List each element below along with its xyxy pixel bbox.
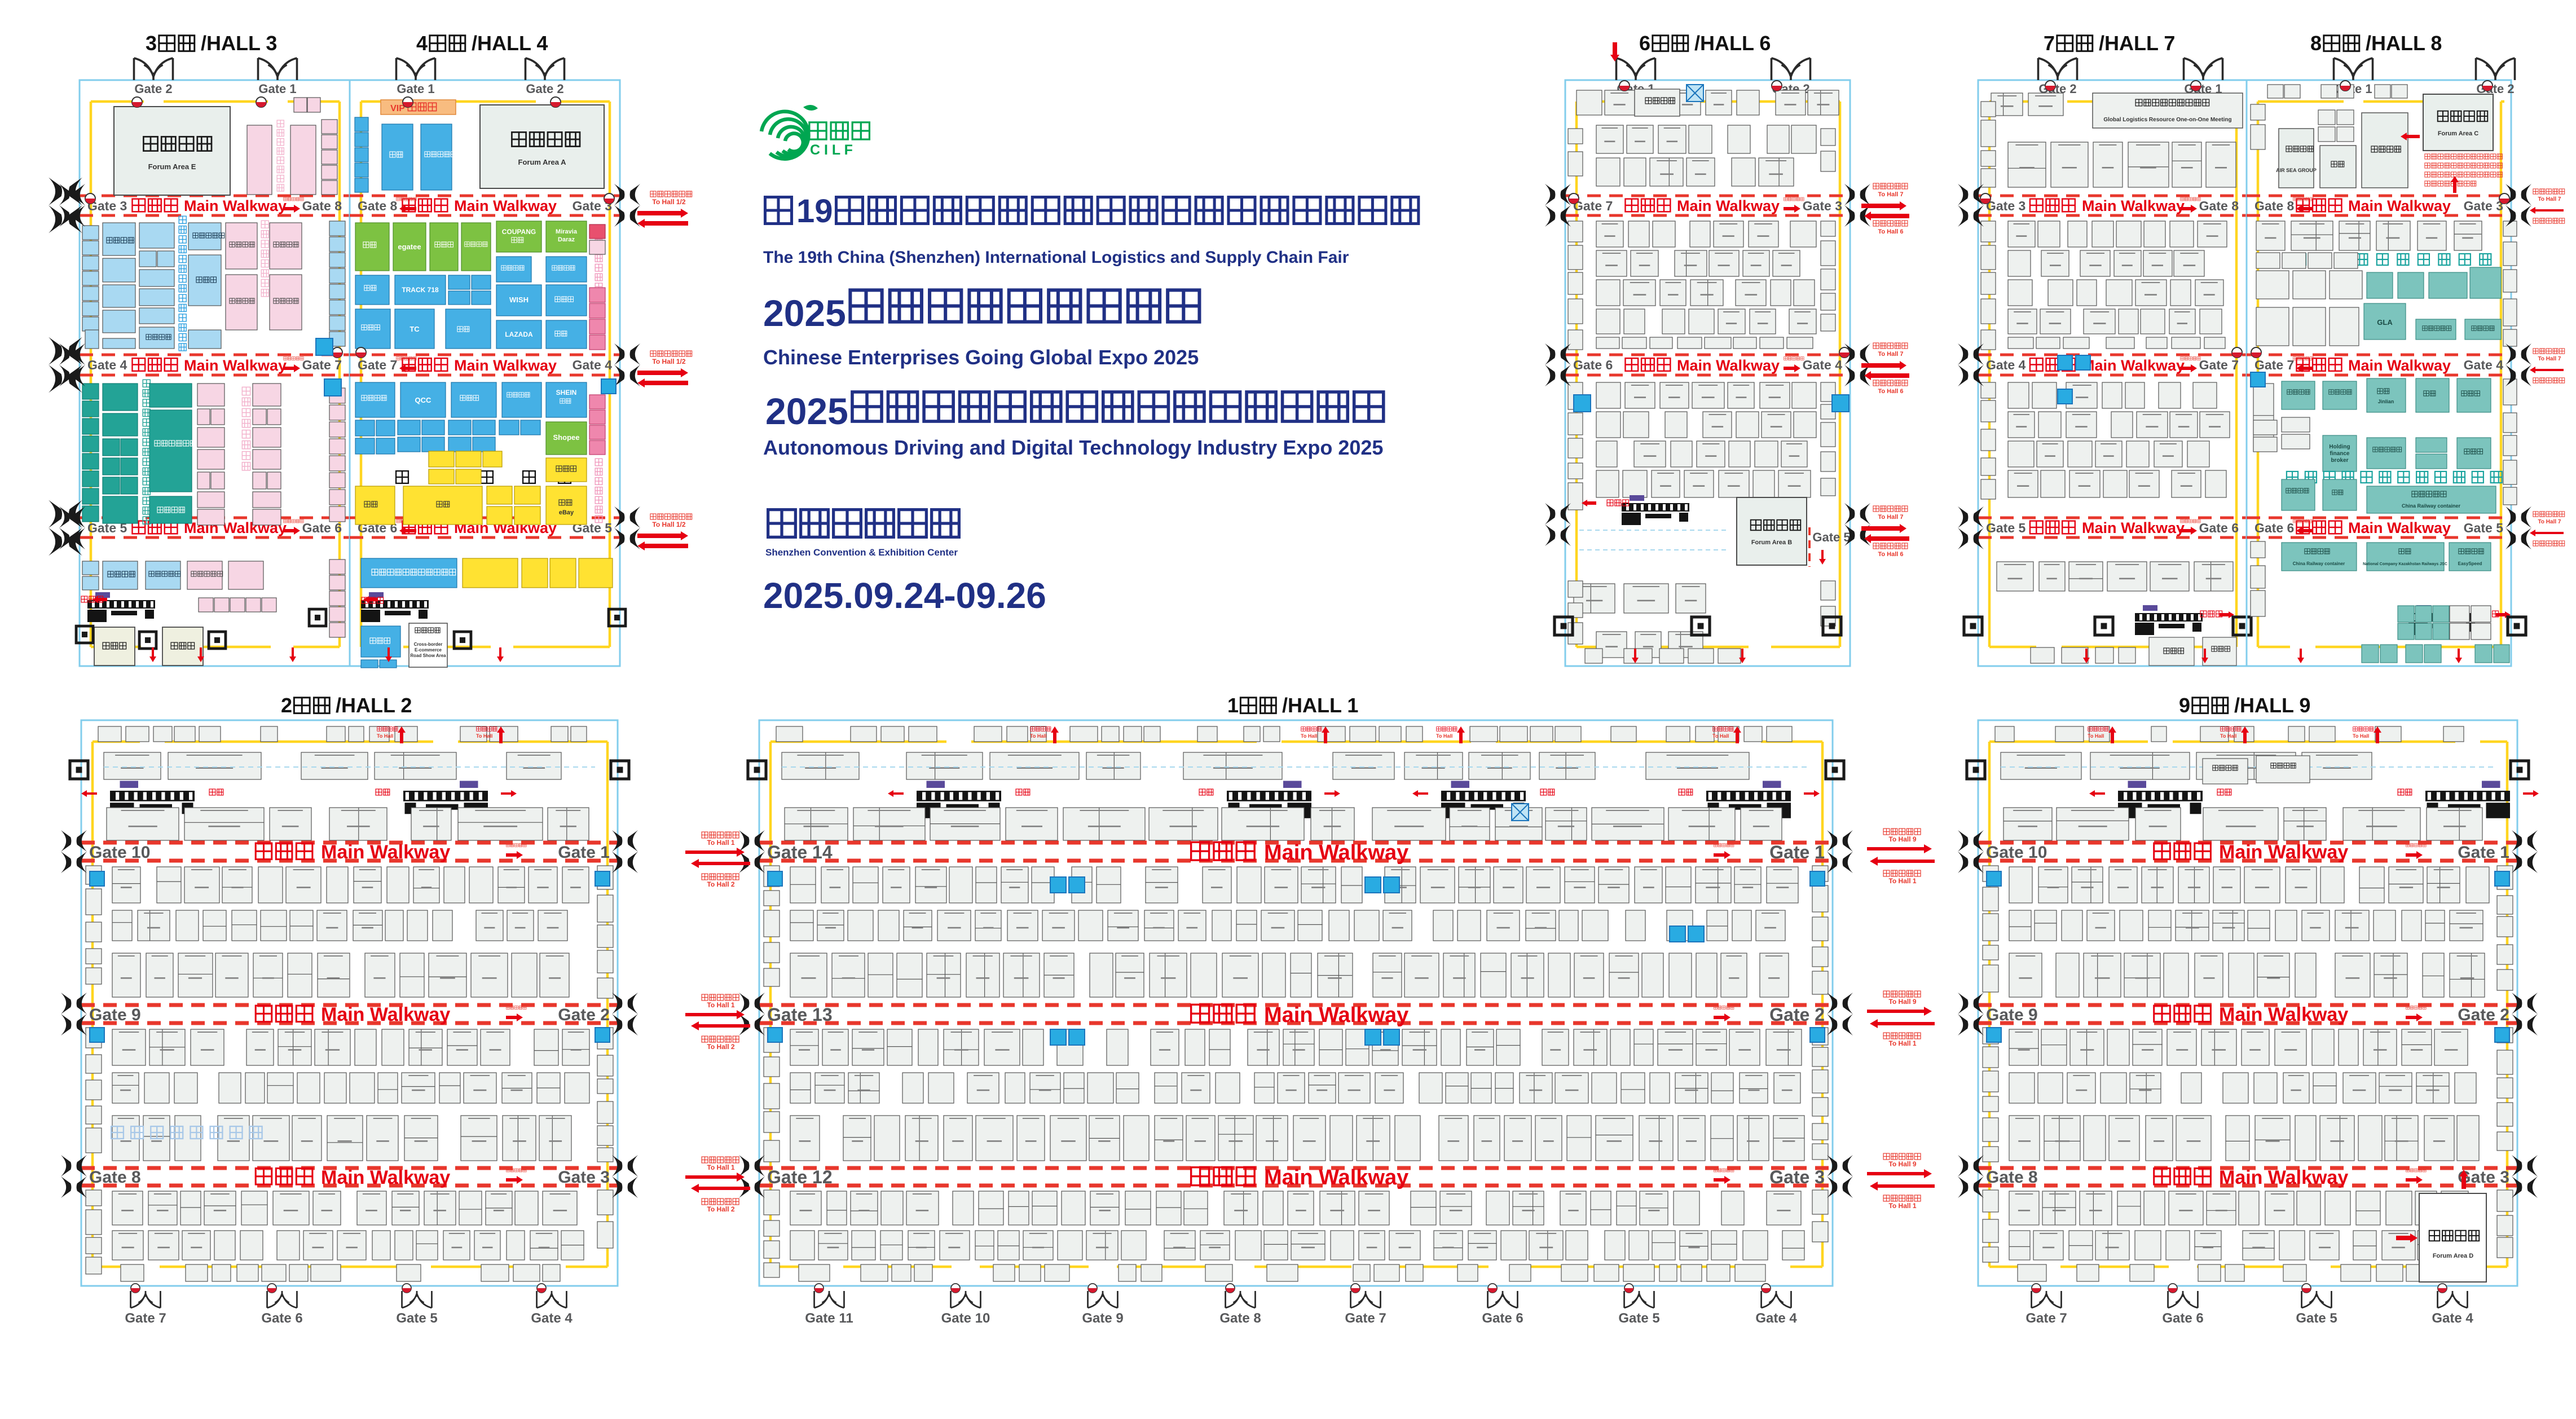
svg-text:Gate 8: Gate 8	[358, 199, 398, 213]
svg-text:Jinlian: Jinlian	[2378, 399, 2394, 404]
svg-text:To Hall 9: To Hall 9	[1888, 835, 1916, 843]
svg-text:TRACK 718: TRACK 718	[402, 286, 439, 294]
svg-text:4: 4	[416, 32, 428, 55]
svg-text:To Hall: To Hall	[377, 733, 393, 739]
svg-text:Gate 1: Gate 1	[558, 843, 610, 862]
svg-text:19: 19	[796, 193, 833, 230]
svg-text:Main Walkway: Main Walkway	[2348, 197, 2451, 214]
svg-text:/HALL 3: /HALL 3	[201, 32, 277, 55]
svg-text:Gate 6: Gate 6	[2162, 1311, 2203, 1326]
svg-text:Gate 7: Gate 7	[125, 1311, 166, 1326]
svg-text:Gate 2: Gate 2	[558, 1006, 610, 1024]
svg-text:Gate 4: Gate 4	[1803, 358, 1843, 372]
svg-text:To Hall 1: To Hall 1	[1888, 1039, 1916, 1047]
svg-text:Gate 1: Gate 1	[1769, 842, 1825, 862]
svg-text:China Railway container: China Railway container	[2402, 503, 2461, 509]
svg-text:To Hall: To Hall	[476, 733, 492, 739]
svg-text:finance: finance	[2330, 451, 2349, 457]
svg-text:Gate 7: Gate 7	[1573, 199, 1613, 213]
svg-text:To Hall 9: To Hall 9	[1888, 1160, 1916, 1168]
svg-text:Main Walkway: Main Walkway	[321, 1167, 450, 1188]
svg-text:To Hall 9: To Hall 9	[1888, 998, 1916, 1006]
svg-text:Gate 4: Gate 4	[87, 358, 127, 372]
svg-text:To Hall 2: To Hall 2	[707, 880, 734, 888]
svg-text:Forum Area C: Forum Area C	[2438, 130, 2478, 137]
svg-text:Gate 6: Gate 6	[1482, 1311, 1523, 1326]
svg-text:eBay: eBay	[559, 509, 574, 516]
svg-text:Forum Area B: Forum Area B	[1751, 539, 1792, 546]
svg-text:Gate 4: Gate 4	[2464, 358, 2504, 372]
svg-text:Gate 7: Gate 7	[2254, 358, 2294, 372]
svg-text:Gate 8: Gate 8	[89, 1168, 141, 1187]
svg-text:Main Walkway: Main Walkway	[184, 357, 287, 374]
svg-text:Main Walkway: Main Walkway	[2348, 519, 2451, 536]
svg-text:TC: TC	[409, 325, 420, 333]
svg-text:To Hall: To Hall	[1030, 733, 1046, 739]
svg-text:Gate 13: Gate 13	[767, 1004, 833, 1025]
svg-text:Gate 4: Gate 4	[1986, 358, 2026, 372]
svg-text:Gate 14: Gate 14	[767, 842, 833, 862]
svg-text:Forum Area E: Forum Area E	[148, 162, 196, 171]
svg-text:AIR SEA GROUP: AIR SEA GROUP	[2276, 168, 2317, 173]
svg-text:Chinese Enterprises Going Glob: Chinese Enterprises Going Global Expo 20…	[763, 346, 1199, 369]
svg-text:8: 8	[2310, 32, 2322, 55]
svg-text:Gate 8: Gate 8	[2254, 199, 2295, 213]
svg-text:Main Walkway: Main Walkway	[321, 841, 450, 863]
svg-text:Gate 1: Gate 1	[258, 82, 296, 96]
svg-text:To Hall 6: To Hall 6	[1878, 551, 1903, 558]
svg-text:Gate 6: Gate 6	[2199, 521, 2239, 535]
svg-text:Daraz: Daraz	[558, 236, 575, 243]
svg-text:SHEIN: SHEIN	[556, 389, 577, 396]
svg-text:Gate 2: Gate 2	[134, 82, 172, 96]
svg-text:Gate 7: Gate 7	[1345, 1311, 1386, 1326]
svg-text:Gate 5: Gate 5	[2464, 521, 2504, 535]
svg-text:The 19th China (Shenzhen) Inte: The 19th China (Shenzhen) International …	[763, 248, 1349, 267]
svg-text:/HALL 1: /HALL 1	[1282, 694, 1358, 717]
svg-text:Gate 6: Gate 6	[261, 1311, 302, 1326]
svg-text:LAZADA: LAZADA	[505, 330, 533, 338]
svg-text:Gate 7: Gate 7	[302, 358, 342, 372]
svg-text:Gate 9: Gate 9	[89, 1006, 141, 1024]
svg-text:Gate 5: Gate 5	[2296, 1311, 2337, 1326]
svg-text:Main Walkway: Main Walkway	[2219, 1004, 2348, 1025]
svg-text:/HALL 2: /HALL 2	[336, 694, 412, 717]
svg-text:Gate 5: Gate 5	[1986, 521, 2026, 535]
svg-text:Main Walkway: Main Walkway	[1677, 357, 1780, 374]
svg-text:Main Walkway: Main Walkway	[184, 197, 287, 214]
svg-text:Gate 5: Gate 5	[1812, 530, 1850, 544]
svg-text:Gate 6: Gate 6	[1573, 358, 1613, 372]
svg-text:To Hall 1: To Hall 1	[1888, 877, 1916, 885]
svg-text:Main Walkway: Main Walkway	[2082, 519, 2185, 536]
svg-text:9: 9	[2179, 694, 2190, 717]
svg-text:Autonomous Driving and Digital: Autonomous Driving and Digital Technolog…	[763, 436, 1383, 459]
svg-text:VIP: VIP	[390, 104, 405, 113]
svg-text:Gate 4: Gate 4	[573, 358, 613, 372]
svg-text:Gate 8: Gate 8	[1986, 1168, 2038, 1187]
svg-text:To Hall 1: To Hall 1	[707, 1001, 734, 1009]
svg-text:Main Walkway: Main Walkway	[1264, 1003, 1408, 1027]
svg-text:Gate 9: Gate 9	[1986, 1006, 2038, 1024]
svg-text:Shopee: Shopee	[553, 433, 580, 442]
svg-text:Gate 10: Gate 10	[89, 843, 150, 862]
svg-text:Gate 6: Gate 6	[302, 521, 342, 535]
svg-text:Gate 9: Gate 9	[1082, 1311, 1123, 1326]
svg-text:To Hall 7: To Hall 7	[2538, 356, 2561, 362]
svg-text:Gate 5: Gate 5	[396, 1311, 437, 1326]
svg-text:To Hall 2: To Hall 2	[707, 1205, 734, 1213]
svg-text:3: 3	[146, 32, 157, 55]
svg-text:1: 1	[1227, 694, 1239, 717]
svg-text:Gate 2: Gate 2	[526, 82, 563, 96]
svg-text:To Hall: To Hall	[2220, 733, 2236, 739]
svg-text:Gate 8: Gate 8	[1219, 1311, 1261, 1326]
svg-text:Gate 3: Gate 3	[1986, 199, 2025, 213]
svg-text:To Hall 7: To Hall 7	[1878, 514, 1903, 521]
svg-text:Gate 10: Gate 10	[1986, 843, 2047, 862]
svg-text:2: 2	[281, 694, 292, 717]
svg-text:COUPANG: COUPANG	[502, 228, 536, 236]
svg-text:Forum Area D: Forum Area D	[2433, 1253, 2473, 1259]
svg-text:Gate 4: Gate 4	[2432, 1311, 2473, 1326]
svg-text:Global Logistics Resource One-: Global Logistics Resource One-on-One Mee…	[2103, 117, 2231, 123]
svg-text:To Hall 1/2: To Hall 1/2	[652, 358, 685, 365]
svg-text:/HALL 4: /HALL 4	[472, 32, 548, 55]
svg-text:Gate 10: Gate 10	[941, 1311, 990, 1326]
svg-text:Gate 7: Gate 7	[2199, 358, 2239, 372]
svg-text:Main Walkway: Main Walkway	[2082, 197, 2185, 214]
svg-text:To Hall 1/2: To Hall 1/2	[652, 521, 685, 528]
svg-text:2025.09.24-09.26: 2025.09.24-09.26	[763, 575, 1046, 616]
svg-text:Main Walkway: Main Walkway	[321, 1004, 450, 1025]
svg-text:Main Walkway: Main Walkway	[1264, 1166, 1408, 1189]
svg-text:QCC: QCC	[415, 396, 432, 404]
svg-text:Gate 7: Gate 7	[358, 358, 397, 372]
svg-text:Shenzhen Convention & Exhibiti: Shenzhen Convention & Exhibition Center	[765, 547, 958, 558]
svg-text:Main Walkway: Main Walkway	[2219, 841, 2348, 863]
svg-text:/HALL 9: /HALL 9	[2234, 694, 2310, 717]
svg-text:Main Walkway: Main Walkway	[2219, 1167, 2348, 1188]
svg-text:Gate 8: Gate 8	[302, 199, 342, 213]
svg-text:Gate 3: Gate 3	[1803, 199, 1842, 213]
svg-text:Gate 3: Gate 3	[558, 1168, 610, 1187]
svg-text:Gate 2: Gate 2	[1769, 1004, 1825, 1025]
svg-text:Gate 5: Gate 5	[1618, 1311, 1659, 1326]
svg-text:Gate 1: Gate 1	[2458, 843, 2509, 862]
svg-text:Road Show Area: Road Show Area	[410, 653, 446, 658]
svg-text:/HALL 6: /HALL 6	[1694, 32, 1771, 55]
svg-text:To Hall 2: To Hall 2	[707, 1043, 734, 1051]
svg-text:2025: 2025	[765, 390, 848, 432]
svg-text:Miravia: Miravia	[556, 228, 578, 235]
svg-text:Gate 1: Gate 1	[397, 82, 434, 96]
svg-text:To Hall 7: To Hall 7	[1878, 351, 1903, 358]
svg-text:National Company Kazakhstan Ra: National Company Kazakhstan Railways JSC	[2363, 562, 2447, 566]
svg-text:To Hall 6: To Hall 6	[1878, 228, 1903, 235]
svg-text:WISH: WISH	[509, 296, 529, 304]
svg-text:Gate 7: Gate 7	[2025, 1311, 2067, 1326]
svg-text:To Hall: To Hall	[2088, 733, 2104, 739]
svg-text:/HALL 8: /HALL 8	[2366, 32, 2442, 55]
svg-text:Main Walkway: Main Walkway	[454, 197, 557, 214]
svg-text:Forum Area A: Forum Area A	[518, 158, 567, 166]
svg-text:7: 7	[2044, 32, 2055, 55]
svg-text:Gate 11: Gate 11	[805, 1311, 853, 1326]
svg-text:Gate 3: Gate 3	[1769, 1167, 1825, 1187]
svg-text:Main Walkway: Main Walkway	[454, 357, 557, 374]
svg-text:Gate 8: Gate 8	[2199, 199, 2239, 213]
svg-text:Main Walkway: Main Walkway	[1264, 841, 1408, 865]
svg-text:6: 6	[1639, 32, 1650, 55]
svg-text:GLA: GLA	[2377, 318, 2393, 327]
svg-text:To Hall 7: To Hall 7	[2538, 196, 2561, 202]
svg-text:2025: 2025	[763, 292, 846, 334]
svg-text:Gate 6: Gate 6	[2254, 521, 2294, 535]
svg-text:Gate 12: Gate 12	[767, 1167, 833, 1187]
svg-text:C I L F: C I L F	[810, 142, 853, 158]
svg-text:/HALL 7: /HALL 7	[2099, 32, 2175, 55]
svg-text:EasySpeed: EasySpeed	[2458, 561, 2482, 566]
svg-text:To Hall: To Hall	[2353, 733, 2369, 739]
svg-text:Main Walkway: Main Walkway	[1677, 197, 1780, 214]
svg-text:To Hall 1: To Hall 1	[1888, 1202, 1916, 1210]
svg-text:Gate 4: Gate 4	[531, 1311, 573, 1326]
svg-text:Holding: Holding	[2329, 444, 2350, 450]
svg-text:To Hall 7: To Hall 7	[1878, 191, 1903, 198]
svg-text:Gate 2: Gate 2	[2458, 1006, 2509, 1024]
svg-text:egatee: egatee	[398, 243, 421, 251]
svg-text:China Railway container: China Railway container	[2293, 561, 2345, 566]
svg-text:broker: broker	[2331, 457, 2348, 464]
svg-text:Main Walkway: Main Walkway	[2082, 357, 2185, 374]
svg-text:To Hall 6: To Hall 6	[1878, 388, 1903, 395]
svg-text:Gate 3: Gate 3	[2464, 199, 2503, 213]
svg-text:E-commerce: E-commerce	[415, 647, 442, 653]
svg-text:To Hall 1: To Hall 1	[707, 1164, 734, 1171]
svg-text:Cross-border: Cross-border	[414, 642, 443, 647]
svg-text:To Hall: To Hall	[1712, 733, 1729, 739]
svg-text:Gate 4: Gate 4	[1755, 1311, 1797, 1326]
svg-text:To Hall: To Hall	[1301, 733, 1317, 739]
svg-text:To Hall: To Hall	[1436, 733, 1452, 739]
svg-text:To Hall 7: To Hall 7	[2538, 519, 2561, 525]
svg-text:To Hall 1/2: To Hall 1/2	[652, 198, 685, 206]
svg-text:To Hall 1: To Hall 1	[707, 839, 734, 847]
svg-text:Main Walkway: Main Walkway	[2348, 357, 2451, 374]
